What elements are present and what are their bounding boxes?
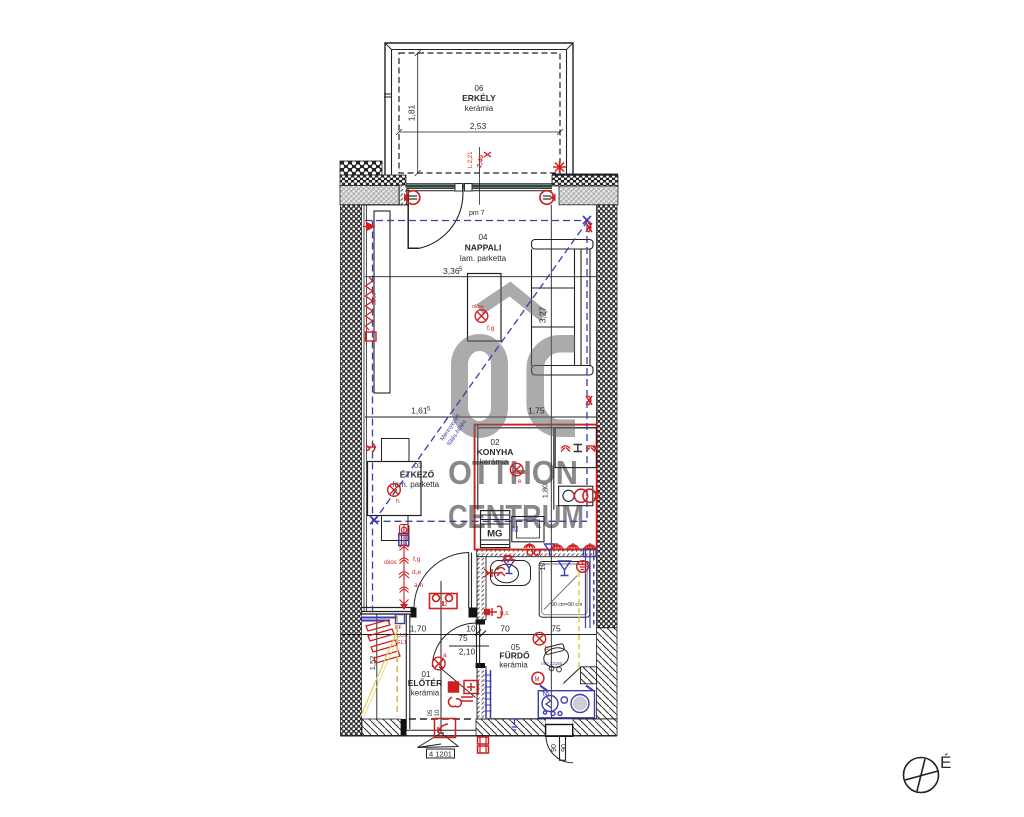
svg-text:3,36: 3,36 bbox=[443, 266, 460, 276]
svg-text:1,75: 1,75 bbox=[528, 406, 545, 416]
svg-text:LU1: LU1 bbox=[397, 633, 407, 639]
svg-text:EL1: EL1 bbox=[397, 640, 407, 646]
svg-text:EF: EF bbox=[395, 625, 403, 631]
svg-text:kerámia: kerámia bbox=[465, 104, 494, 113]
svg-text:KONYHA: KONYHA bbox=[477, 447, 514, 457]
svg-text:1,80: 1,80 bbox=[541, 484, 550, 499]
svg-text:M: M bbox=[512, 525, 519, 534]
svg-text:02: 02 bbox=[491, 438, 500, 447]
svg-text:75: 75 bbox=[551, 624, 561, 634]
svg-text:b,c: b,c bbox=[500, 610, 509, 617]
svg-text:f,g: f,g bbox=[487, 325, 495, 332]
svg-text:04: 04 bbox=[479, 233, 488, 242]
svg-text:ÉTKEZŐ: ÉTKEZŐ bbox=[400, 469, 435, 480]
svg-text:75: 75 bbox=[458, 633, 468, 643]
svg-text:kerámia: kerámia bbox=[499, 661, 528, 670]
svg-text:90: 90 bbox=[561, 744, 568, 752]
svg-text:3,27: 3,27 bbox=[538, 306, 548, 323]
svg-text:06: 06 bbox=[475, 84, 484, 93]
svg-text:okos: okos bbox=[384, 560, 397, 566]
svg-text:1,61: 1,61 bbox=[411, 406, 428, 416]
svg-text:70: 70 bbox=[500, 624, 510, 634]
svg-text:10: 10 bbox=[435, 709, 441, 716]
svg-text:1,81: 1,81 bbox=[407, 104, 417, 121]
svg-text:L 2,21: L 2,21 bbox=[468, 151, 474, 168]
svg-text:60/90: 60/90 bbox=[372, 292, 378, 305]
svg-text:VIN.32160: VIN.32160 bbox=[541, 661, 563, 666]
svg-text:É: É bbox=[940, 753, 951, 772]
svg-text:90 cm=90 cm: 90 cm=90 cm bbox=[551, 602, 582, 608]
svg-text:05: 05 bbox=[428, 709, 434, 716]
svg-text:kerámia: kerámia bbox=[480, 458, 509, 467]
svg-text:10: 10 bbox=[540, 563, 547, 571]
svg-text:f,g: f,g bbox=[413, 556, 421, 563]
svg-text:FÜRDŐ: FÜRDŐ bbox=[499, 650, 530, 661]
svg-text:kerámia: kerámia bbox=[411, 689, 440, 698]
svg-text:90: 90 bbox=[551, 744, 558, 752]
svg-text:2,10: 2,10 bbox=[459, 647, 476, 657]
svg-text:10: 10 bbox=[466, 624, 476, 634]
svg-text:a-h: a-h bbox=[414, 582, 424, 589]
svg-text:a: a bbox=[443, 652, 447, 659]
svg-text:2,53: 2,53 bbox=[470, 121, 487, 131]
svg-text:ERKÉLY: ERKÉLY bbox=[462, 93, 496, 103]
svg-text:lam. parketta: lam. parketta bbox=[460, 254, 507, 263]
svg-text:4 1201: 4 1201 bbox=[429, 750, 452, 759]
svg-text:NAPPALI: NAPPALI bbox=[465, 243, 502, 253]
svg-text:1,70: 1,70 bbox=[410, 624, 427, 634]
svg-text:d,e: d,e bbox=[412, 569, 421, 576]
svg-text:M: M bbox=[535, 677, 540, 683]
svg-text:h: h bbox=[396, 498, 400, 505]
svg-text:b: b bbox=[545, 645, 549, 652]
svg-text:pm 7: pm 7 bbox=[469, 210, 485, 217]
svg-text:ELŐTÉR: ELŐTÉR bbox=[408, 677, 442, 688]
svg-text:e: e bbox=[518, 478, 522, 485]
svg-text:okos: okos bbox=[472, 304, 484, 310]
